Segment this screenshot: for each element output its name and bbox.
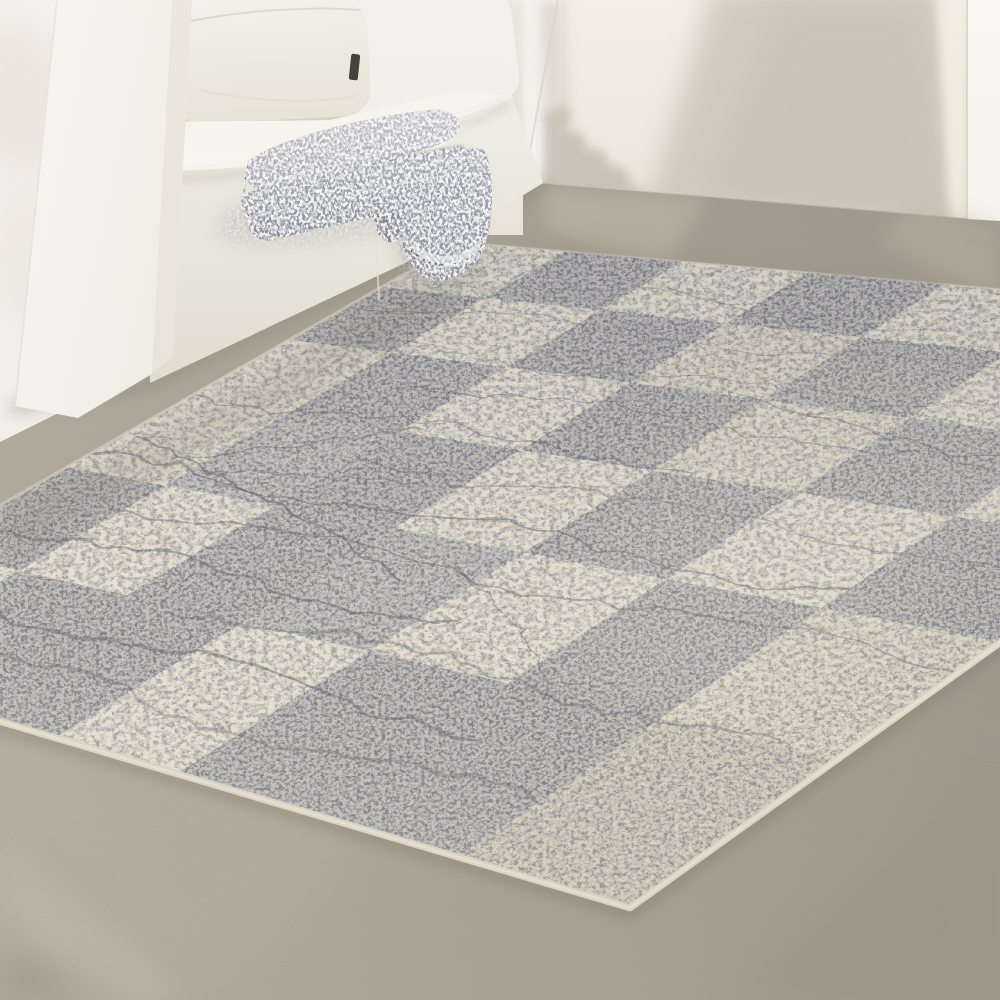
- light-layer: [0, 0, 1000, 1000]
- vignette: [0, 0, 1000, 1000]
- room-photo: [0, 0, 1000, 1000]
- scene-canvas: [0, 0, 1000, 1000]
